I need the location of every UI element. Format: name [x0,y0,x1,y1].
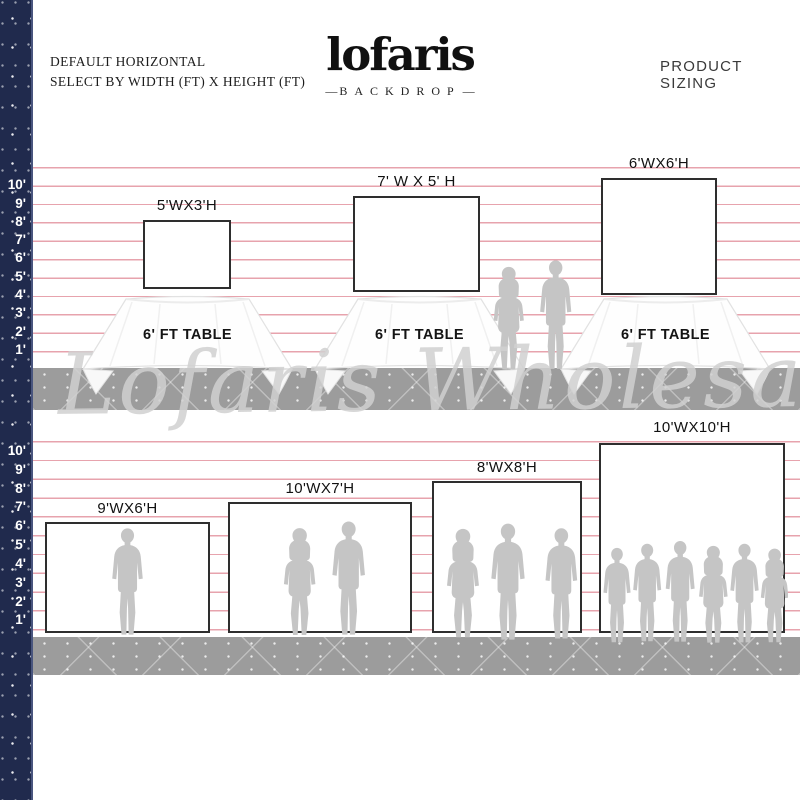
single-man-silhouette [106,527,149,641]
ruler-mark: 1' [0,612,26,628]
ruler-mark: 4' [0,556,26,572]
backdrop-size-label: 7' W X 5' H [323,173,510,190]
tagline-dash-right: — [463,84,475,98]
backdrop-size-label: 6'WX6'H [571,155,747,172]
table-6ft: 6' FT TABLE [80,294,295,398]
ruler-mark: 6' [0,518,26,534]
ruler-mark: 7' [0,232,26,248]
backdrop-size-label: 8'WX8'H [402,459,612,476]
backdrop-5x3 [143,220,231,289]
ruler-strip [0,0,33,800]
ruler-mark: 8' [0,214,26,230]
ruler-mark: 10' [0,177,26,193]
backdrop-size-label: 5'WX3'H [113,197,261,214]
brand-tagline: —BACKDROP— [290,84,510,99]
page-title: PRODUCT SIZING [660,58,795,92]
tagline-dash-left: — [325,84,337,98]
tagline-text: BACKDROP [339,84,460,98]
ruler-mark: 5' [0,269,26,285]
ruler-mark: 2' [0,324,26,340]
backdrop-size-label: 9'WX6'H [15,500,240,517]
ruler-mark: 4' [0,287,26,303]
ruler-mark: 3' [0,575,26,591]
tablecloth-illustration [80,294,295,398]
couple-silhouette [488,256,579,374]
tablecloth-illustration [558,294,773,398]
table-6ft: 6' FT TABLE [558,294,773,398]
backdrop-size-label: 10'WX10'H [569,419,800,436]
ruler-mark: 9' [0,462,26,478]
ruler-mark: 8' [0,481,26,497]
backdrop-size-label: 10'WX7'H [198,480,442,497]
group-of-six-silhouette [598,528,788,648]
product-sizing-infographic: DEFAULT HORIZONTAL SELECT BY WIDTH (FT) … [0,0,800,800]
ruler-mark: 3' [0,305,26,321]
ruler-mark: 9' [0,196,26,212]
table-label: 6' FT TABLE [558,327,773,343]
brand-logo: lofaris [290,30,510,80]
couple-silhouette [278,518,373,640]
group-of-three-silhouette [441,516,589,642]
ruler-mark: 6' [0,250,26,266]
table-label: 6' FT TABLE [80,327,295,343]
ruler-mark: 10' [0,443,26,459]
ruler-mark: 2' [0,594,26,610]
backdrop-7x5 [353,196,480,292]
backdrop-6x6 [601,178,717,295]
ruler-mark: 1' [0,342,26,358]
ruler-mark: 5' [0,537,26,553]
